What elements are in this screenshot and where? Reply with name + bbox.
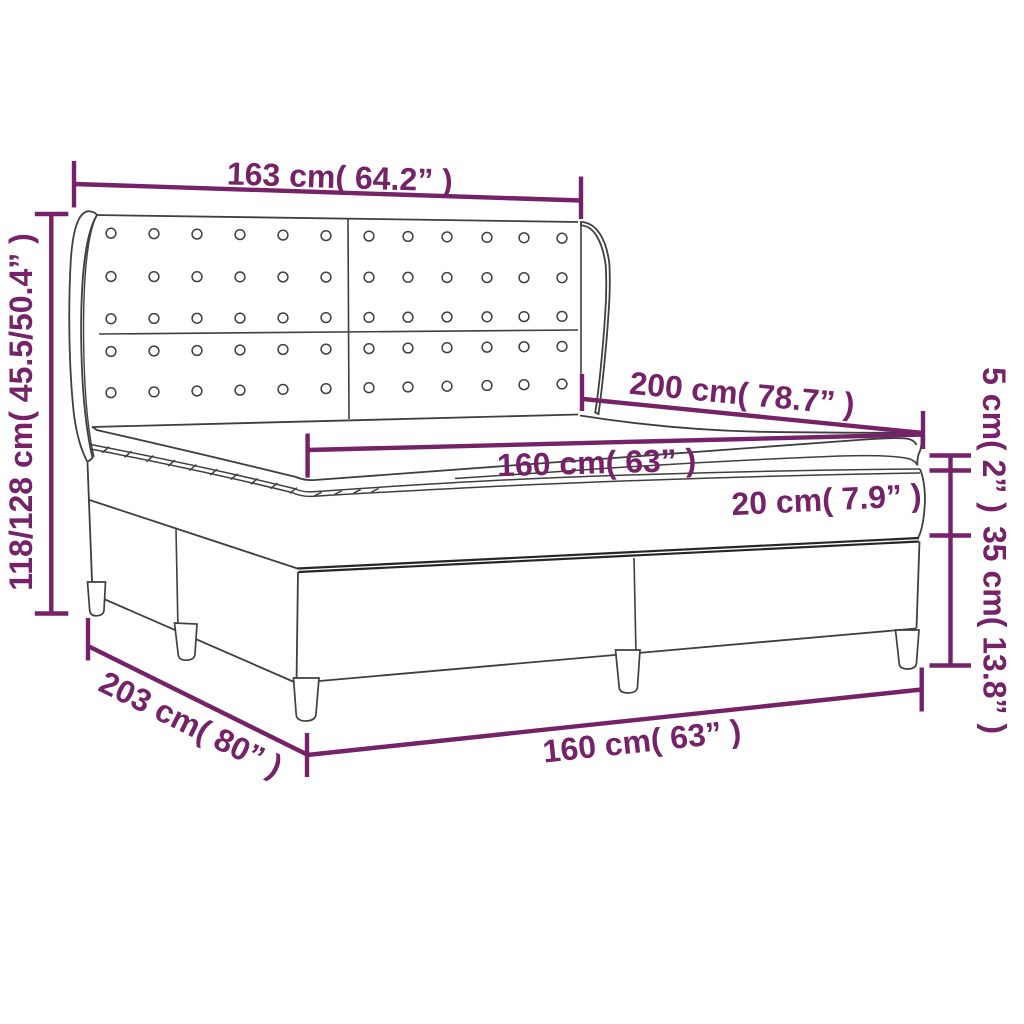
svg-text:163 cm( 64.2” ): 163 cm( 64.2” )	[226, 155, 453, 198]
svg-text:160 cm( 63” ): 160 cm( 63” )	[497, 442, 697, 484]
svg-text:5 cm( 2” ): 5 cm( 2” )	[976, 367, 1012, 513]
svg-text:35 cm( 13.8” ): 35 cm( 13.8” )	[977, 526, 1013, 734]
svg-text:118/128 cm( 45.5/50.4” ): 118/128 cm( 45.5/50.4” )	[3, 233, 39, 591]
